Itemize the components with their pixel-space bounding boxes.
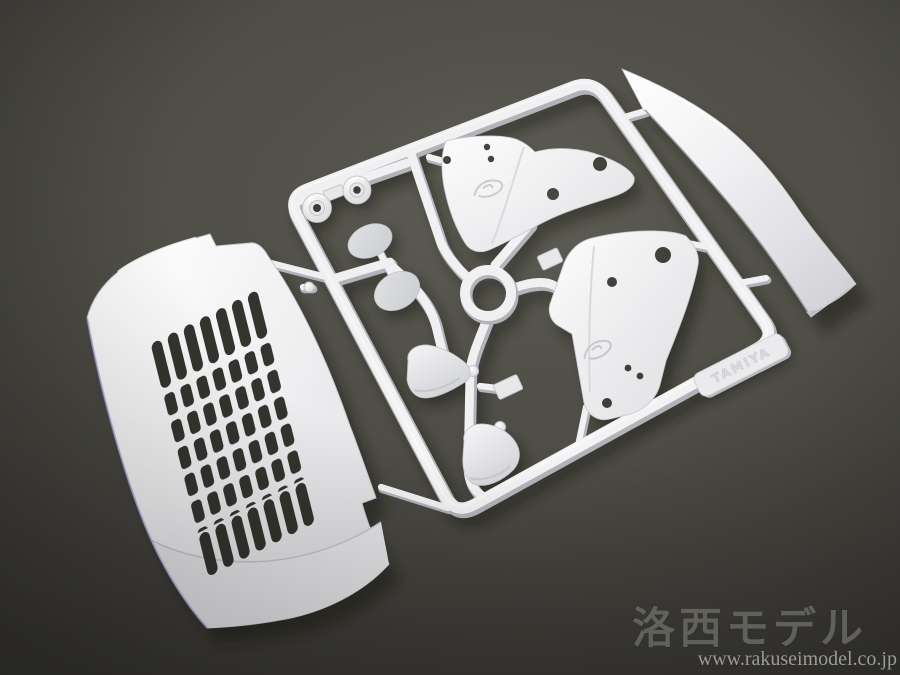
photo-scene: TAMIYA — [0, 0, 900, 675]
watermark-brand: 洛西モデル — [632, 604, 867, 654]
watermark-url: www.rakuseimodel.co.jp — [698, 648, 897, 670]
photo-stage: TAMIYA — [0, 0, 900, 675]
vignette — [0, 0, 900, 675]
